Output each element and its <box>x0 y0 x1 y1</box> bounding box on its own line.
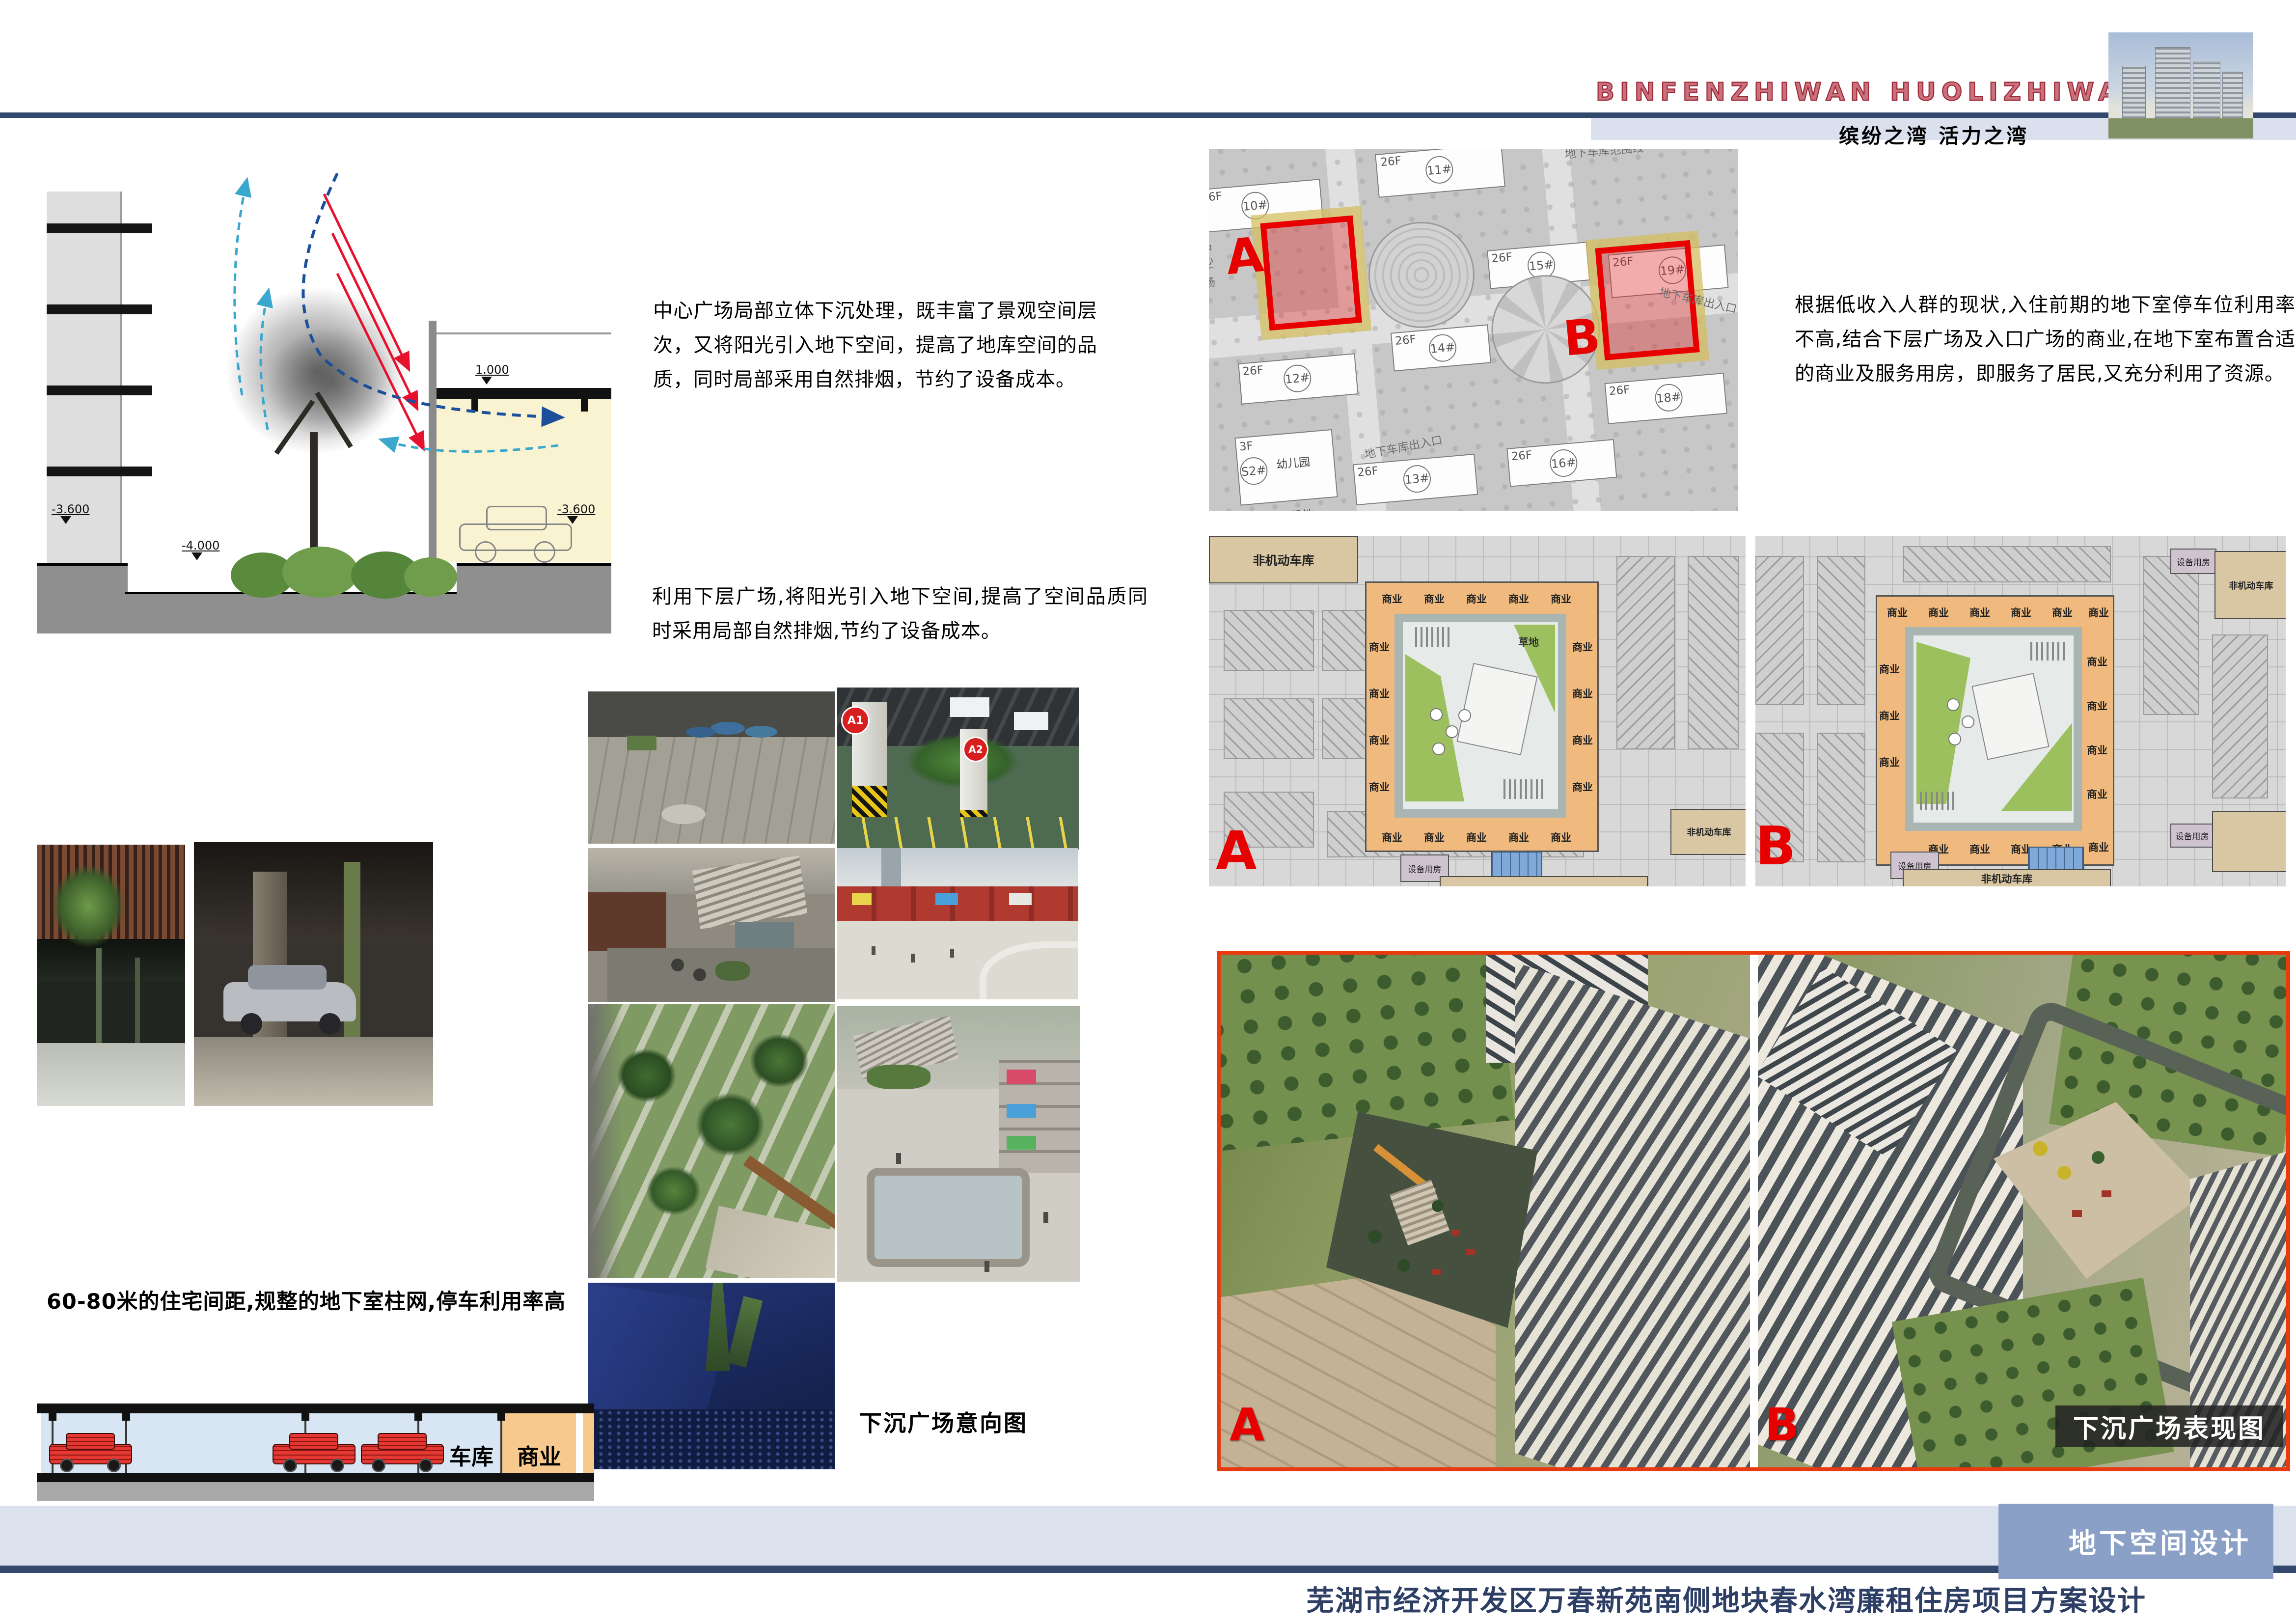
planting <box>715 961 750 981</box>
shop-label: 商业 <box>1879 661 1900 676</box>
shop-label: 商业 <box>1369 779 1390 794</box>
umbrella <box>686 727 715 738</box>
pebble-floor <box>588 1409 835 1469</box>
parking-stalls <box>1616 556 1675 749</box>
parking-stalls <box>1817 733 1865 862</box>
sunken-plaza-a-highlight <box>1260 216 1362 331</box>
shop-label: 商业 <box>1508 830 1529 845</box>
red-car <box>49 1433 130 1471</box>
tower-shape <box>2122 66 2146 122</box>
tree-canopy <box>52 864 125 948</box>
canopy-dot <box>2102 1190 2111 1197</box>
tower-shape <box>2193 61 2220 122</box>
floor-slab <box>37 1473 594 1482</box>
shop-label: 商业 <box>2087 787 2107 801</box>
stone-sculpture <box>661 804 706 824</box>
shop-label: 商业 <box>1382 591 1402 606</box>
shop-label: 商业 <box>1466 591 1487 606</box>
level-marker-icon <box>191 552 202 560</box>
airflow-sunlight-arrows <box>37 165 611 631</box>
floors-label: 26F <box>1380 155 1402 169</box>
shop-label: 商业 <box>517 1439 561 1471</box>
rendering-panel-b: B <box>1758 955 2286 1467</box>
person <box>911 954 915 963</box>
shop-label: 商业 <box>1928 605 1949 620</box>
shop-label: 商业 <box>2087 698 2107 713</box>
tree <box>750 1034 809 1088</box>
light-panel <box>950 697 989 717</box>
sign <box>1007 1104 1036 1118</box>
shop-label: 商业 <box>2052 605 2073 620</box>
header-divider-line <box>0 112 2296 118</box>
shop-label: 商业 <box>1369 639 1390 654</box>
cafe-awning <box>588 892 666 951</box>
cafe-table <box>671 959 684 971</box>
paving <box>37 1043 185 1106</box>
rendering-ground <box>2108 118 2253 138</box>
photo-sunken-cafe <box>588 848 835 1002</box>
table <box>1430 708 1443 721</box>
umbrella <box>745 726 777 738</box>
palm-tree <box>1432 1200 1444 1212</box>
table <box>1962 716 1974 728</box>
person <box>872 946 875 955</box>
car-dot <box>1451 1230 1460 1236</box>
table <box>1432 743 1445 755</box>
photo-garage-car <box>194 842 433 1106</box>
text-block-column-grid: 60-80米的住宅间距,规整的地下室柱网,停车利用率高 <box>47 1288 592 1316</box>
shop-label: 商业 <box>1572 686 1593 701</box>
palm-tree <box>1397 1259 1410 1272</box>
red-car <box>273 1433 354 1471</box>
shop-label: 商业 <box>1424 830 1445 845</box>
header-rendering-thumbnail <box>2108 32 2253 138</box>
level-label: -4.000 <box>182 539 219 552</box>
shop-label: 商业 <box>1369 733 1390 747</box>
person <box>984 1261 989 1272</box>
shop-label: 商业 <box>1879 755 1900 770</box>
garage-label: 车库 <box>449 1439 493 1471</box>
building-edge <box>588 1004 622 1278</box>
person <box>950 949 954 958</box>
project-subtitle-cn: 缤纷之湾 活力之湾 <box>1839 119 2029 149</box>
basement-plan-b: 商业 商业 商业 商业 商业 商业 商业 商业 商业 商业 商业 商业 商业 商… <box>1755 536 2286 886</box>
floor <box>194 1037 433 1106</box>
intent-caption: 下沉广场意向图 <box>859 1405 1028 1438</box>
shop-label: 商业 <box>1572 639 1593 654</box>
car-cabin <box>248 965 327 990</box>
column-capital <box>414 1413 422 1421</box>
floors-label: 26F <box>1491 251 1513 266</box>
floors-label: 26F <box>1242 364 1264 379</box>
sunken-plaza-rendering: A B 下沉广场表现图 <box>1217 951 2290 1471</box>
floors-label: 26F <box>1609 384 1631 398</box>
bike-garage-block: 非机动车库 <box>1209 536 1358 583</box>
parking-stalls <box>1224 610 1314 671</box>
photo-courtyard-garden <box>588 1004 835 1278</box>
tree <box>696 1093 765 1156</box>
shop-label: 商业 <box>1969 842 1990 856</box>
shop-label: 商业 <box>1424 591 1445 606</box>
parking-stalls <box>1755 556 1804 705</box>
photo-sunken-mall <box>837 848 1078 999</box>
level-label: 1.000 <box>475 363 509 377</box>
ceiling <box>194 842 433 942</box>
table <box>1446 725 1458 738</box>
shop-label: 商业 <box>2087 654 2107 669</box>
column-capital <box>49 1413 56 1421</box>
garage-section-diagram: 车库 商业 <box>37 1404 594 1502</box>
cafe-table <box>693 968 706 981</box>
car-dot <box>1466 1249 1475 1255</box>
hedge <box>867 1065 930 1089</box>
floors-label: 26F <box>1357 465 1379 479</box>
person <box>896 1153 901 1164</box>
floors-label: 26F <box>1209 190 1223 205</box>
equipment-room: 设备用房 <box>2170 824 2214 848</box>
tree <box>2092 1151 2105 1164</box>
yellow-tree <box>2033 1141 2048 1156</box>
parking-stalls <box>1817 556 1865 705</box>
rendering-panel-a: A <box>1221 955 1750 1467</box>
sign <box>1009 893 1032 905</box>
floors-label: 3F <box>1239 440 1254 453</box>
fountain-pool <box>867 1168 1030 1267</box>
bike-garage-block <box>2212 811 2286 872</box>
shop-label: 商业 <box>1382 830 1402 845</box>
palm-tree <box>1368 1230 1382 1243</box>
level-label: -3.600 <box>52 502 89 516</box>
shop-label: 商业 <box>1369 686 1390 701</box>
site-plan-rotated-group: 26F 10# 26F 11# 26F 15# 26F 19# 26F 12# … <box>1209 149 1738 511</box>
stair <box>1415 627 1449 647</box>
shop-label: 商业 <box>1551 591 1571 606</box>
shop-label: 商业 <box>1887 605 1908 620</box>
shop-label: 商业 <box>1572 779 1593 794</box>
bike-garage-block: 非机动车库 <box>1670 809 1746 855</box>
project-title-cn: 芜湖市经济开发区万春新苑南侧地块春水湾廉租住房项目方案设计 <box>1306 1578 2269 1619</box>
shop-label: 商业 <box>1969 605 1990 620</box>
basement-plan-a: 非机动车库 商业 商业 商业 商业 商业 商业 商业 商业 商业 商业 商业 商… <box>1209 536 1746 886</box>
text-block-lower-plaza: 利用下层广场,将阳光引入地下空间,提高了空间品质同时采用局部自然排烟,节约了设备… <box>652 579 1148 648</box>
level-marker-icon <box>60 516 71 524</box>
sunken-plaza-section-diagram: 1.000 -3.600 -4.000 -3.600 <box>37 165 611 631</box>
tower-shape <box>2155 47 2190 122</box>
project-title-en: BINFENZHIWAN HUOLIZHIWAN <box>1596 78 2116 106</box>
shop-label: 商业 <box>1551 830 1571 845</box>
level-label: -3.600 <box>557 502 595 516</box>
tower-silhouette <box>881 848 901 887</box>
render-b-marker: B <box>1765 1403 1799 1448</box>
tree <box>647 1166 701 1215</box>
car-wheel <box>319 1013 341 1035</box>
ground <box>37 1482 594 1501</box>
hanging-plant <box>706 1283 730 1371</box>
site-plan: 26F 10# 26F 11# 26F 15# 26F 19# 26F 12# … <box>1209 149 1738 511</box>
floor-markings <box>837 817 1079 850</box>
parking-stalls <box>1903 546 2111 582</box>
level-marker-icon <box>567 516 578 524</box>
shadow-band <box>37 939 185 981</box>
sign <box>1007 1070 1036 1084</box>
paving <box>588 737 835 844</box>
floors-label: 26F <box>1511 449 1533 464</box>
column-capital <box>122 1413 130 1421</box>
roof-slab <box>37 1404 594 1413</box>
footer-section-tab: 地下空间设计 <box>1998 1504 2273 1579</box>
sign <box>1007 1136 1036 1150</box>
person <box>1043 1212 1048 1223</box>
hedge <box>627 736 656 750</box>
shop-label: 商业 <box>2087 743 2107 757</box>
render-caption: 下沉广场表现图 <box>2073 1408 2266 1445</box>
equipment-room: 设备用房 <box>2170 549 2216 574</box>
column-badge-a2: A2 <box>963 737 988 762</box>
bike-garage-label: 非机动车库 <box>1210 537 1357 582</box>
marker-a: A <box>1224 231 1265 282</box>
umbrella <box>711 722 745 735</box>
photo-blue-courtyard <box>588 1283 835 1469</box>
table <box>1948 733 1961 745</box>
photo-garage-rendering: A1 A2 <box>837 688 1079 850</box>
grass-label: 草地 <box>1518 634 1539 649</box>
column-capital <box>301 1413 309 1421</box>
parking-stalls <box>1688 556 1739 749</box>
presentation-sheet: BINFENZHIWAN HUOLIZHIWAN 缤纷之湾 活力之湾 <box>0 0 2296 1624</box>
kindergarten-label: 幼儿园 <box>1276 452 1311 472</box>
red-car <box>361 1433 442 1471</box>
marker-b: B <box>1561 312 1602 363</box>
photo-plaza-umbrellas <box>588 691 835 844</box>
shop-space <box>583 1413 594 1473</box>
bike-garage-block <box>1440 876 1648 886</box>
bike-garage-label: 非机动车库 <box>1671 810 1746 854</box>
photo-fountain-plaza <box>837 1006 1080 1282</box>
tree <box>617 1048 676 1102</box>
shop-label: 商业 <box>1879 708 1900 723</box>
table <box>1458 709 1471 722</box>
render-a-marker: A <box>1230 1403 1264 1448</box>
parking-stalls <box>2143 556 2199 715</box>
column <box>500 1413 502 1473</box>
shop-label: 商业 <box>1466 830 1487 845</box>
parking-stalls <box>2212 634 2268 798</box>
plan-b-marker: B <box>1755 820 1796 873</box>
stair <box>1503 779 1543 799</box>
sign <box>935 893 958 905</box>
parking-stalls <box>1224 698 1314 759</box>
stair <box>2030 642 2067 661</box>
plan-a-marker: A <box>1216 825 1257 878</box>
footer-divider-line <box>0 1566 2296 1573</box>
footer-bar <box>0 1506 2296 1566</box>
sign <box>852 893 872 905</box>
bike-garage-label: 非机动车库 <box>2215 552 2286 618</box>
canopy-dot <box>2072 1210 2082 1217</box>
bike-garage-label: 非机动车库 <box>1904 870 2110 886</box>
stair <box>1920 792 1957 810</box>
tower-shape <box>2222 72 2243 122</box>
shop-label: 商业 <box>2088 840 2109 854</box>
car-dot <box>1432 1269 1441 1275</box>
shop-label: 商业 <box>1508 591 1529 606</box>
shop-label: 商业 <box>2088 605 2109 620</box>
wall-gap <box>576 1413 583 1473</box>
photo-sunken-courtyard-trees <box>37 845 185 1106</box>
text-block-center-plaza: 中心广场局部立体下沉处理，既丰富了景观空间层次，又将阳光引入地下空间，提高了地库… <box>653 294 1097 397</box>
sky-city <box>837 848 1078 890</box>
bike-garage-block: 非机动车库 <box>1903 869 2111 886</box>
tower-facade <box>1515 963 1750 1467</box>
shop-label: 商业 <box>1572 733 1593 747</box>
light-panel <box>1014 712 1048 730</box>
shop-label: 商业 <box>2011 605 2031 620</box>
bike-garage-block: 非机动车库 <box>2214 551 2286 619</box>
render-caption-box: 下沉广场表现图 <box>2055 1405 2283 1447</box>
level-marker-icon <box>481 377 492 385</box>
yellow-tree <box>2057 1166 2071 1180</box>
car-wheel <box>241 1013 262 1035</box>
text-block-commercial: 根据低收入人群的现状,入住前期的地下室停车位利用率不高,结合下层广场及入口广场的… <box>1795 288 2296 391</box>
column-capital <box>497 1413 505 1421</box>
table <box>1947 698 1960 711</box>
column-badge-a1: A1 <box>841 706 870 735</box>
floors-label: 26F <box>1394 333 1417 348</box>
